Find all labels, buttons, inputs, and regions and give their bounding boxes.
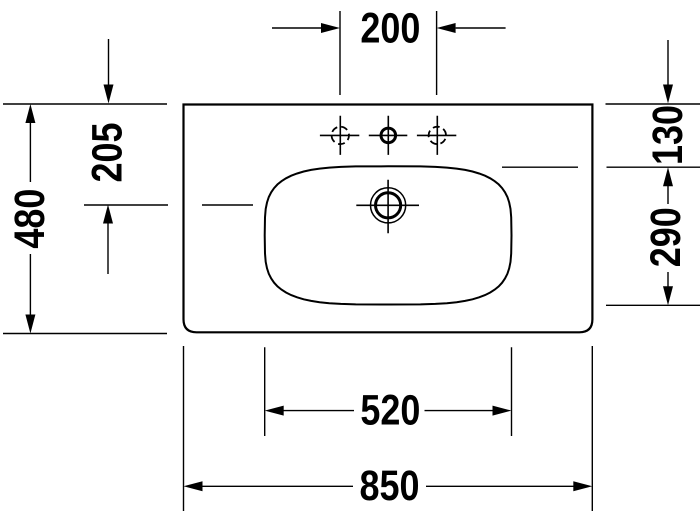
svg-text:520: 520 bbox=[360, 386, 420, 434]
svg-text:850: 850 bbox=[360, 462, 420, 510]
svg-text:130: 130 bbox=[644, 105, 692, 165]
svg-text:290: 290 bbox=[642, 207, 690, 267]
svg-text:205: 205 bbox=[84, 123, 132, 183]
svg-text:200: 200 bbox=[360, 5, 420, 53]
svg-text:480: 480 bbox=[6, 189, 54, 249]
